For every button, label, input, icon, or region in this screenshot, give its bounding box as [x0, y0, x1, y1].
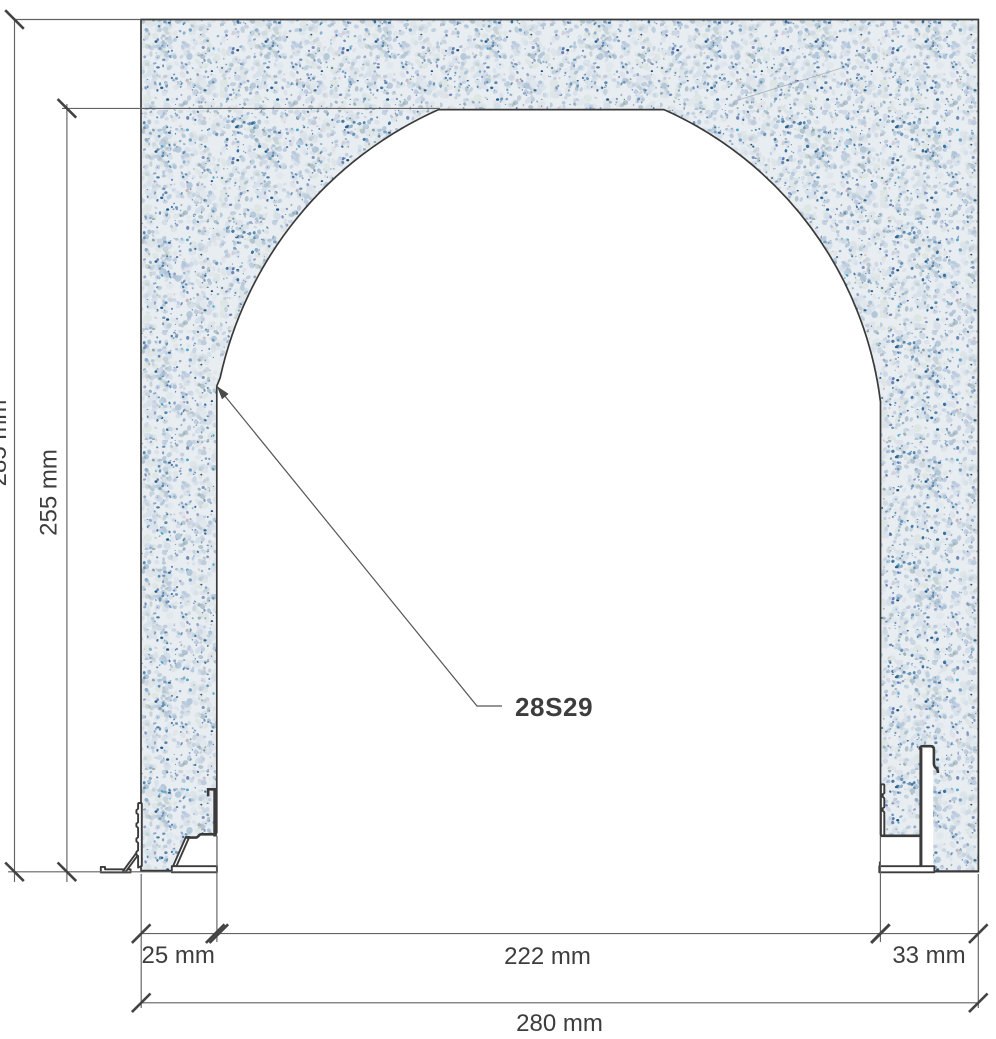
svg-text:285 mm: 285 mm [0, 400, 12, 487]
svg-text:33 mm: 33 mm [892, 942, 965, 969]
svg-text:28S29: 28S29 [515, 692, 593, 722]
svg-text:25 mm: 25 mm [142, 942, 215, 969]
svg-text:255 mm: 255 mm [36, 449, 63, 536]
svg-text:222 mm: 222 mm [504, 943, 591, 970]
svg-text:280 mm: 280 mm [516, 1010, 603, 1037]
